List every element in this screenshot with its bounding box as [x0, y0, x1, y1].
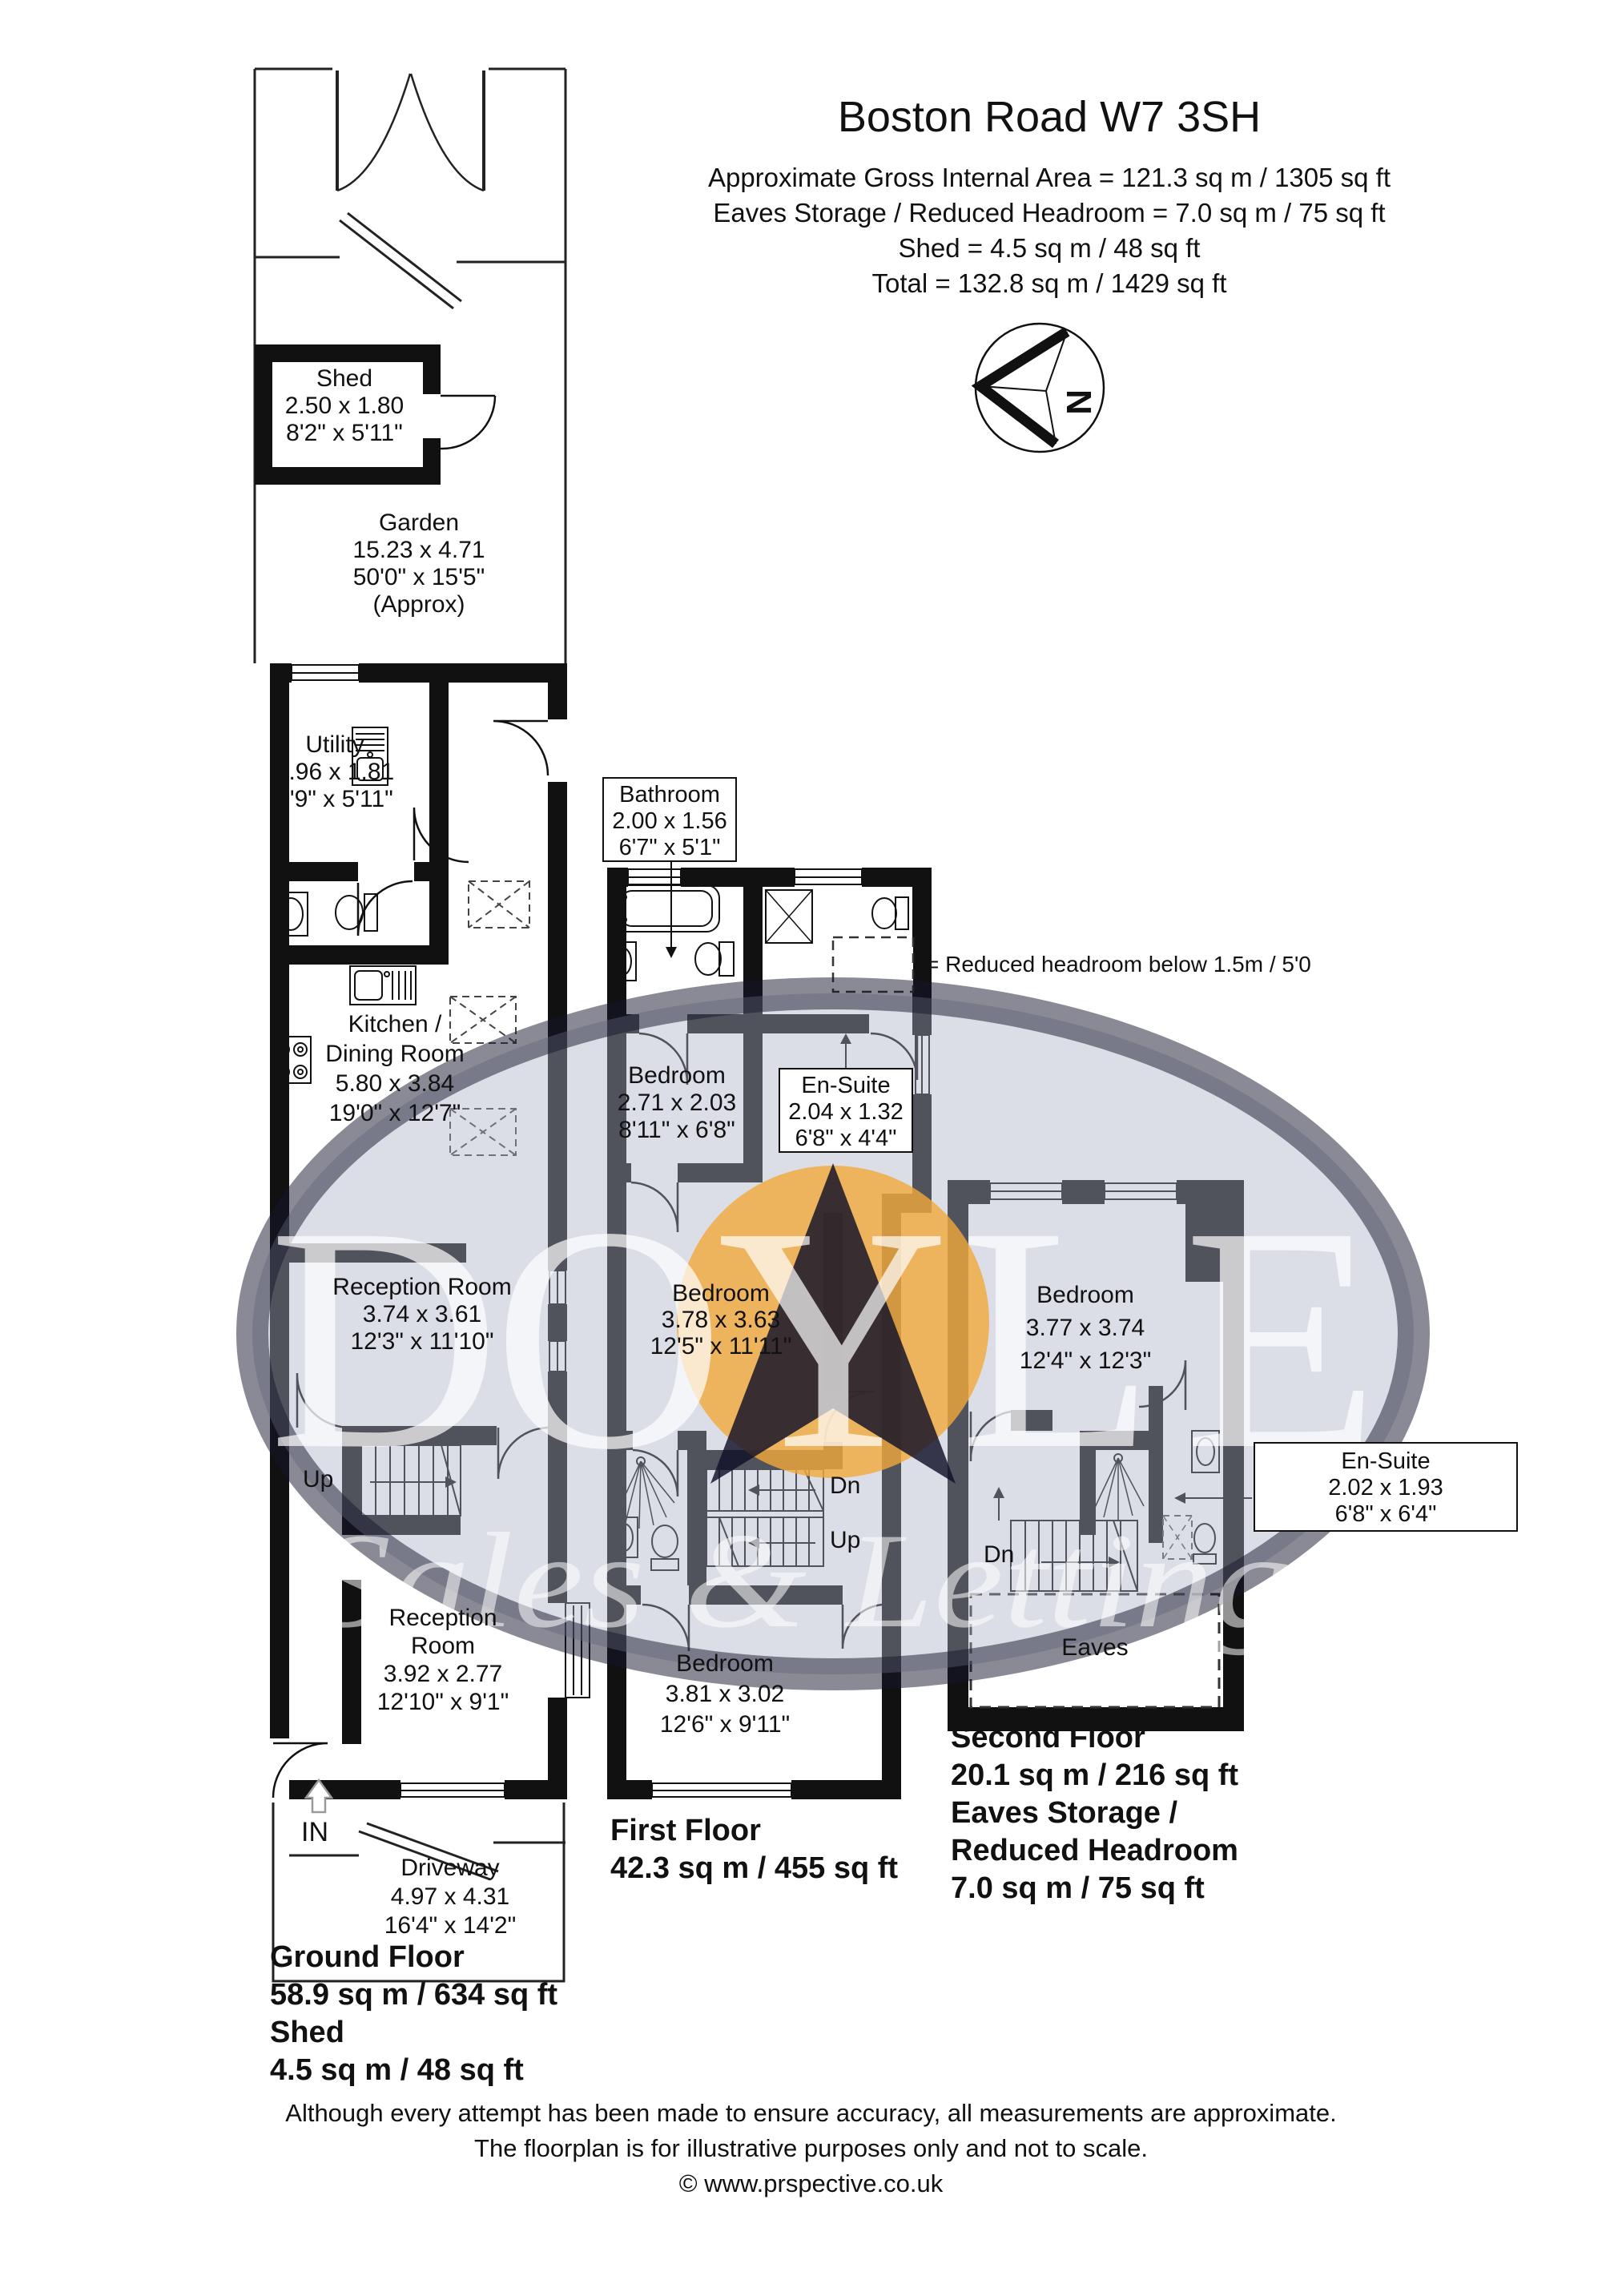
room-label-driveway: Driveway 4.97 x 4.31 16'4" x 14'2"	[384, 1854, 517, 1940]
stairs-up-arrowhead-first	[748, 1537, 759, 1549]
first-floor-summary: First Floor 42.3 sq m / 455 sq ft	[610, 1812, 898, 1887]
room-label-bedroom-second: Bedroom 3.77 x 3.74 12'4" x 12'3"	[1020, 1279, 1152, 1377]
room-label-garden: Garden 15.23 x 4.71 50'0" x 15'5" (Appro…	[352, 510, 485, 618]
ensuite2-leader-arrowhead	[1174, 1492, 1185, 1504]
disclaimer: Although every attempt has been made to …	[0, 2096, 1622, 2201]
stairs-up-label-first: Up	[830, 1527, 860, 1554]
floorplan-page: N D O Y L E Sales & Lettings Boston Road…	[0, 0, 1622, 2296]
bath-icon	[614, 885, 719, 932]
page-title: Boston Road W7 3SH	[473, 93, 1622, 141]
room-label-shed: Shed 2.50 x 1.80 8'2" x 5'11"	[285, 365, 404, 447]
ground-floor-summary: Ground Floor 58.9 sq m / 634 sq ft Shed …	[270, 1939, 557, 2089]
bathroom-toilet-icon	[695, 942, 734, 976]
stairs-dn-arrowhead-second	[1109, 1557, 1120, 1568]
ensuite-shower-icon	[766, 890, 812, 943]
second-shower-tray-dashed	[1163, 1516, 1192, 1559]
room-label-bedroom-middle: Bedroom 3.78 x 3.63 12'5" x 11'11"	[650, 1280, 792, 1359]
legend-text: = Reduced headroom below 1.5m / 5'0	[926, 952, 1311, 977]
room-label-bedroom-rear: Bedroom 2.71 x 2.03 8'11" x 6'8"	[618, 1062, 736, 1144]
callout-ensuite-second: En-Suite 2.02 x 1.93 6'8" x 6'4"	[1254, 1442, 1518, 1532]
stairs-up-label-ground: Up	[303, 1466, 333, 1493]
header-line-eaves: Eaves Storage / Reduced Headroom = 7.0 s…	[473, 195, 1622, 231]
up-tick-arrowhead	[993, 1487, 1004, 1498]
kitchen-sink-icon	[350, 966, 416, 1005]
header-line-area: Approximate Gross Internal Area = 121.3 …	[473, 160, 1622, 195]
room-label-utility: Utility 2.96 x 1.81 9'9" x 5'11"	[276, 731, 394, 813]
entrance-in-label: IN	[301, 1817, 328, 1848]
header-line-shed: Shed = 4.5 sq m / 48 sq ft	[473, 231, 1622, 266]
header-line-total: Total = 132.8 sq m / 1429 sq ft	[473, 266, 1622, 301]
callout-ensuite-first: En-Suite 2.04 x 1.32 6'8" x 4'4"	[779, 1068, 913, 1153]
second-shower-icon	[1093, 1454, 1144, 1521]
eaves-label: Eaves	[1061, 1634, 1128, 1662]
compass-north-letter: N	[1059, 389, 1098, 415]
room-label-reception1: Reception Room 3.74 x 3.61 12'3" x 11'10…	[332, 1274, 511, 1355]
header: Boston Road W7 3SH Approximate Gross Int…	[473, 93, 1622, 301]
stairs-dn-label-second: Dn	[984, 1541, 1014, 1569]
stairs-second	[999, 1495, 1137, 1591]
stairs-dn-label-first: Dn	[830, 1472, 860, 1500]
shed-door	[441, 396, 495, 449]
callout-bathroom: Bathroom 2.00 x 1.56 6'7" x 5'1"	[602, 777, 737, 862]
ensuite-toilet-icon	[872, 897, 908, 929]
compass-icon: N	[976, 324, 1104, 452]
room-label-kitchen: Kitchen / Dining Room 5.80 x 3.84 19'0" …	[325, 1009, 464, 1128]
legend-dashed-box	[833, 937, 913, 992]
bathroom-leader-arrowhead	[666, 947, 677, 958]
room-label-bedroom-front: Bedroom 3.81 x 3.02 12'6" x 9'11"	[660, 1649, 790, 1740]
stairs-dn-arrowhead	[748, 1484, 759, 1496]
ensuite-leader-arrowhead	[840, 1033, 851, 1044]
second-floor-summary: Second Floor 20.1 sq m / 216 sq ft Eaves…	[951, 1719, 1238, 1907]
room-label-reception2: Reception Room 3.92 x 2.77 12'10" x 9'1"	[377, 1604, 509, 1716]
stairs-first	[706, 1469, 823, 1566]
